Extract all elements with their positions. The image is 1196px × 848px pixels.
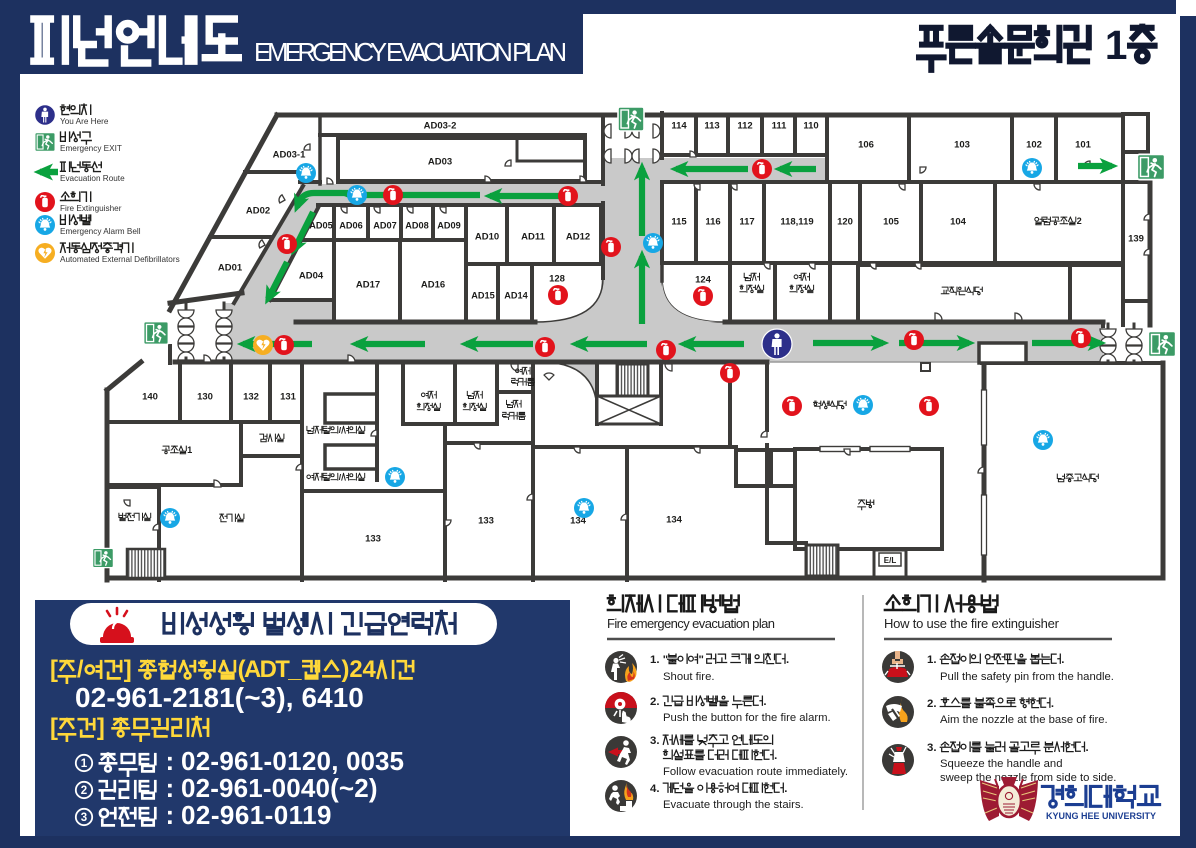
svg-text:AD15: AD15 [471,290,495,300]
svg-text:134: 134 [666,514,683,525]
svg-text:AD09: AD09 [437,220,461,230]
svg-text:Fire Extinguisher: Fire Extinguisher [60,204,122,213]
svg-text:AD14: AD14 [504,290,528,300]
svg-text:AD12: AD12 [566,231,590,242]
svg-text:.: . [1051,698,1054,710]
svg-text:1: 1 [187,445,192,455]
svg-text:Push the button for the fire a: Push the button for the fire alarm. [663,712,831,724]
svg-text:Follow evacuation route immedi: Follow evacuation route immediately. [663,766,848,778]
svg-text:113: 113 [704,120,719,131]
svg-text:1.: 1. [650,654,660,666]
svg-text:2: 2 [1077,216,1082,226]
svg-text:]: ] [124,656,132,683]
svg-text:2: 2 [81,785,87,797]
svg-text:6410: 6410 [302,682,364,713]
svg-text:106: 106 [858,139,874,150]
svg-text:AD04: AD04 [299,270,324,281]
svg-text:Fire emergency evacuation plan: Fire emergency evacuation plan [607,616,775,631]
svg-text:Automated External Defibrillat: Automated External Defibrillators [60,255,180,264]
svg-text::: : [166,746,175,776]
svg-text:(ADT_: (ADT_ [238,656,303,683]
svg-text:117: 117 [739,216,754,227]
svg-text:104: 104 [950,216,967,227]
svg-text:You Are Here: You Are Here [60,117,109,126]
svg-text:4.: 4. [650,783,660,795]
svg-text:.: . [1061,654,1064,666]
svg-text:E/L: E/L [884,556,897,565]
svg-text:139: 139 [1128,233,1144,244]
svg-text:/: / [77,656,84,683]
svg-text:102: 102 [1026,139,1042,150]
svg-text:AD11: AD11 [521,231,545,242]
svg-text:105: 105 [883,216,900,227]
svg-text:AD16: AD16 [421,279,445,290]
svg-text:.: . [774,750,777,762]
svg-text:132: 132 [243,391,259,402]
svg-text:]: ] [97,714,105,741]
svg-text:Aim the nozzle at the base of: Aim the nozzle at the base of fire. [940,714,1108,726]
svg-text:": " [699,654,704,666]
svg-text:AD07: AD07 [373,220,397,230]
svg-text:Squeeze the handle and: Squeeze the handle and [940,758,1063,770]
svg-text:Shout fire.: Shout fire. [663,671,715,683]
svg-text:.: . [784,783,787,795]
svg-text:02-961-0040(~2): 02-961-0040(~2) [181,773,378,803]
svg-text:.: . [763,696,766,708]
svg-text:AD03-1: AD03-1 [273,149,306,160]
svg-text:114: 114 [671,120,687,131]
svg-text:)24: )24 [342,656,377,683]
svg-text:124: 124 [695,274,712,285]
svg-text:110: 110 [803,120,818,131]
svg-text:103: 103 [954,139,970,150]
svg-text:112: 112 [737,120,752,131]
svg-text:1.: 1. [927,654,937,666]
svg-text:118,119: 118,119 [780,216,813,227]
svg-text:2.: 2. [927,698,937,710]
svg-text:120: 120 [837,216,853,227]
svg-text:115: 115 [671,216,687,227]
svg-text:Evacuate through the stairs.: Evacuate through the stairs. [663,799,804,811]
svg-text:0035: 0035 [346,746,404,776]
svg-text::: : [166,800,175,830]
svg-text:02-961-0119: 02-961-0119 [181,800,332,830]
svg-text:101: 101 [1075,139,1092,150]
svg-text:[: [ [50,656,58,683]
svg-text:AD03-2: AD03-2 [424,120,457,131]
svg-text:3.: 3. [927,742,937,754]
svg-text:.: . [1086,742,1089,754]
svg-text:Emergency EXIT: Emergency EXIT [60,144,122,153]
svg-text:How to use the fire extinguish: How to use the fire extinguisher [884,616,1060,631]
svg-text:sweep the nozzle from side to: sweep the nozzle from side to side. [940,772,1116,784]
svg-text:133: 133 [478,515,494,526]
svg-text:KYUNG HEE UNIVERSITY: KYUNG HEE UNIVERSITY [1046,811,1156,821]
svg-text:1: 1 [81,758,88,770]
svg-text:AD08: AD08 [405,220,429,230]
svg-text:AD06: AD06 [339,220,363,230]
svg-text::: : [166,773,175,803]
svg-text:116: 116 [705,216,720,227]
svg-text:2.: 2. [650,696,660,708]
svg-text:EMERGENCY EVACUATION PLAN: EMERGENCY EVACUATION PLAN [254,39,567,67]
svg-text:131: 131 [280,391,297,402]
svg-text:02-961-2181(~3),: 02-961-2181(~3), [75,682,294,713]
svg-text:128: 128 [549,273,565,284]
svg-text:AD05: AD05 [309,220,333,230]
svg-text:3.: 3. [650,735,660,747]
svg-text:140: 140 [142,391,158,402]
svg-text:Emergency Alarm Bell: Emergency Alarm Bell [60,227,141,236]
svg-text:AD01: AD01 [218,262,243,273]
svg-text:[: [ [50,714,58,741]
svg-text:AD17: AD17 [356,279,380,290]
svg-text:": " [663,654,668,666]
svg-text:AD10: AD10 [475,231,499,242]
svg-text:Pull the safety pin from the h: Pull the safety pin from the handle. [940,671,1114,683]
svg-text:130: 130 [197,391,213,402]
svg-text:3: 3 [81,812,87,824]
svg-text:111: 111 [772,120,788,131]
svg-text:1: 1 [1105,22,1128,68]
svg-text:Evacuation Route: Evacuation Route [60,174,125,183]
svg-text:AD03: AD03 [428,156,452,167]
svg-text:133: 133 [365,533,381,544]
svg-text:AD02: AD02 [246,205,270,216]
svg-text:.: . [786,654,789,666]
svg-text:02-961-0120,: 02-961-0120, [181,746,339,776]
